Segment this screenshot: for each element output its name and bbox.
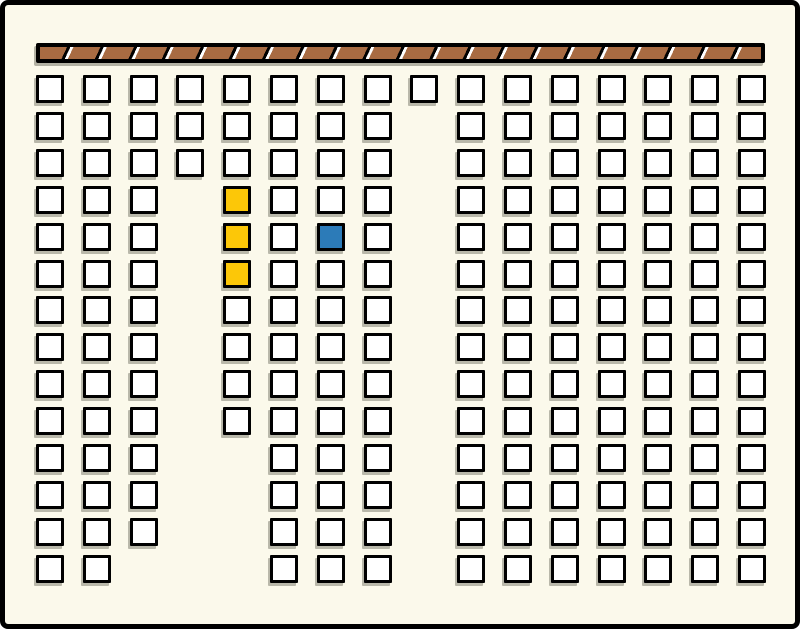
- grid-cell[interactable]: [83, 296, 111, 324]
- grid-cell[interactable]: [551, 370, 579, 398]
- grid-cell[interactable]: [270, 112, 298, 140]
- grid-cell[interactable]: [270, 555, 298, 583]
- grid-cell[interactable]: [223, 296, 251, 324]
- grid-cell[interactable]: [83, 518, 111, 546]
- grid-cell[interactable]: [691, 75, 719, 103]
- grid-cell[interactable]: [364, 186, 392, 214]
- grid-cell[interactable]: [504, 112, 532, 140]
- grid-cell[interactable]: [551, 333, 579, 361]
- grid-cell[interactable]: [598, 296, 626, 324]
- grid-cell[interactable]: [317, 149, 345, 177]
- grid-cell[interactable]: [644, 370, 672, 398]
- grid-cell[interactable]: [598, 260, 626, 288]
- grid-cell[interactable]: [551, 518, 579, 546]
- grid-cell[interactable]: [551, 75, 579, 103]
- grid-cell[interactable]: [36, 223, 64, 251]
- grid-cell[interactable]: [691, 407, 719, 435]
- grid-cell[interactable]: [457, 444, 485, 472]
- grid-cell[interactable]: [551, 223, 579, 251]
- grid-cell[interactable]: [317, 518, 345, 546]
- grid-cell[interactable]: [738, 444, 766, 472]
- grid-cell[interactable]: [457, 260, 485, 288]
- grid-cell[interactable]: [691, 223, 719, 251]
- grid-cell[interactable]: [317, 481, 345, 509]
- grid-cell[interactable]: [223, 333, 251, 361]
- grid-cell[interactable]: [364, 481, 392, 509]
- grid-cell[interactable]: [504, 260, 532, 288]
- grid-cell[interactable]: [270, 296, 298, 324]
- grid-cell[interactable]: [317, 370, 345, 398]
- grid-cell[interactable]: [691, 370, 719, 398]
- grid-cell[interactable]: [176, 75, 204, 103]
- grid-cell[interactable]: [691, 112, 719, 140]
- grid-cell[interactable]: [551, 149, 579, 177]
- grid-cell[interactable]: [457, 333, 485, 361]
- grid-cell[interactable]: [457, 481, 485, 509]
- grid-cell[interactable]: [457, 75, 485, 103]
- grid-cell[interactable]: [738, 407, 766, 435]
- grid-cell[interactable]: [738, 296, 766, 324]
- grid-cell[interactable]: [551, 444, 579, 472]
- grid-cell[interactable]: [270, 186, 298, 214]
- grid-cell[interactable]: [176, 112, 204, 140]
- grid-cell[interactable]: [644, 407, 672, 435]
- grid-cell[interactable]: [504, 223, 532, 251]
- grid-cell-marked[interactable]: [223, 260, 251, 288]
- grid-cell[interactable]: [410, 75, 438, 103]
- grid-cell[interactable]: [176, 149, 204, 177]
- grid-cell[interactable]: [270, 149, 298, 177]
- grid-cell[interactable]: [738, 223, 766, 251]
- grid-cell[interactable]: [83, 112, 111, 140]
- grid-cell[interactable]: [644, 296, 672, 324]
- grid-cell[interactable]: [598, 333, 626, 361]
- grid-cell[interactable]: [83, 260, 111, 288]
- grid-cell[interactable]: [598, 370, 626, 398]
- grid-cell[interactable]: [738, 112, 766, 140]
- grid-cell[interactable]: [270, 481, 298, 509]
- grid-cell[interactable]: [317, 333, 345, 361]
- grid-cell[interactable]: [36, 370, 64, 398]
- grid-cell[interactable]: [36, 75, 64, 103]
- grid-cell[interactable]: [83, 223, 111, 251]
- grid-cell[interactable]: [598, 407, 626, 435]
- grid-cell[interactable]: [644, 75, 672, 103]
- grid-cell[interactable]: [644, 149, 672, 177]
- grid-cell[interactable]: [36, 444, 64, 472]
- grid-cell[interactable]: [130, 444, 158, 472]
- hatched-wall-bar: [36, 43, 765, 63]
- grid-cell[interactable]: [317, 260, 345, 288]
- grid-cell[interactable]: [738, 518, 766, 546]
- grid-cell[interactable]: [130, 370, 158, 398]
- grid-cell[interactable]: [738, 260, 766, 288]
- grid-cell[interactable]: [504, 149, 532, 177]
- grid-cell[interactable]: [504, 333, 532, 361]
- grid-cell[interactable]: [36, 112, 64, 140]
- grid-cell[interactable]: [83, 407, 111, 435]
- grid-cell[interactable]: [691, 296, 719, 324]
- grid-cell[interactable]: [457, 296, 485, 324]
- grid-board: [0, 0, 800, 629]
- grid-cell[interactable]: [644, 444, 672, 472]
- grid-cell[interactable]: [457, 112, 485, 140]
- grid-cell[interactable]: [130, 75, 158, 103]
- grid-cell[interactable]: [83, 149, 111, 177]
- grid-cell[interactable]: [738, 149, 766, 177]
- grid-cell[interactable]: [457, 149, 485, 177]
- grid-cell[interactable]: [598, 444, 626, 472]
- grid-cell[interactable]: [270, 260, 298, 288]
- grid-cell[interactable]: [36, 186, 64, 214]
- grid-cell[interactable]: [83, 370, 111, 398]
- grid-cell[interactable]: [644, 186, 672, 214]
- grid-cell[interactable]: [36, 518, 64, 546]
- grid-cell[interactable]: [457, 223, 485, 251]
- grid-cell[interactable]: [691, 260, 719, 288]
- grid-cell[interactable]: [223, 370, 251, 398]
- grid-cell[interactable]: [551, 407, 579, 435]
- grid-cell[interactable]: [598, 75, 626, 103]
- grid-cell[interactable]: [644, 518, 672, 546]
- grid-cell[interactable]: [691, 444, 719, 472]
- grid-cell[interactable]: [457, 555, 485, 583]
- grid-cell-marked[interactable]: [223, 186, 251, 214]
- grid-cell[interactable]: [364, 518, 392, 546]
- grid-cell[interactable]: [364, 333, 392, 361]
- grid-cell[interactable]: [598, 112, 626, 140]
- grid-cell[interactable]: [36, 407, 64, 435]
- grid-cell[interactable]: [364, 149, 392, 177]
- grid-cell[interactable]: [551, 186, 579, 214]
- grid-cell[interactable]: [504, 186, 532, 214]
- grid-cell[interactable]: [598, 149, 626, 177]
- grid-cell[interactable]: [738, 370, 766, 398]
- grid-cell[interactable]: [691, 481, 719, 509]
- grid-cell[interactable]: [504, 75, 532, 103]
- grid-cell[interactable]: [317, 444, 345, 472]
- grid-cell[interactable]: [364, 260, 392, 288]
- grid-cell[interactable]: [644, 333, 672, 361]
- grid-cell[interactable]: [130, 260, 158, 288]
- grid-cell-marked[interactable]: [223, 223, 251, 251]
- grid-cell[interactable]: [457, 370, 485, 398]
- grid-cell[interactable]: [551, 260, 579, 288]
- grid-cell[interactable]: [270, 370, 298, 398]
- grid-cell[interactable]: [598, 518, 626, 546]
- grid-cell[interactable]: [504, 370, 532, 398]
- grid-cell[interactable]: [364, 370, 392, 398]
- grid-cell[interactable]: [130, 481, 158, 509]
- grid-cell[interactable]: [457, 518, 485, 546]
- grid-cell[interactable]: [644, 260, 672, 288]
- grid-cell[interactable]: [691, 518, 719, 546]
- grid-cell[interactable]: [598, 223, 626, 251]
- grid-cell[interactable]: [83, 75, 111, 103]
- grid-cell[interactable]: [36, 481, 64, 509]
- grid-cell[interactable]: [36, 555, 64, 583]
- grid-cell[interactable]: [691, 555, 719, 583]
- grid-cell[interactable]: [457, 186, 485, 214]
- grid-cell[interactable]: [504, 518, 532, 546]
- grid-cell-marked[interactable]: [317, 223, 345, 251]
- grid-cell[interactable]: [130, 407, 158, 435]
- grid-cell[interactable]: [130, 296, 158, 324]
- grid-cell[interactable]: [504, 555, 532, 583]
- grid-cell[interactable]: [317, 186, 345, 214]
- grid-cell[interactable]: [223, 149, 251, 177]
- grid-cell[interactable]: [551, 555, 579, 583]
- grid-cell[interactable]: [364, 112, 392, 140]
- grid-cell[interactable]: [504, 407, 532, 435]
- grid-cell[interactable]: [551, 481, 579, 509]
- grid-cell[interactable]: [270, 518, 298, 546]
- grid-cell[interactable]: [738, 481, 766, 509]
- grid-cell[interactable]: [738, 186, 766, 214]
- grid-cell[interactable]: [504, 296, 532, 324]
- grid-cell[interactable]: [504, 481, 532, 509]
- grid-cell[interactable]: [364, 444, 392, 472]
- grid-cell[interactable]: [36, 296, 64, 324]
- grid-cell[interactable]: [738, 555, 766, 583]
- grid-cell[interactable]: [317, 112, 345, 140]
- grid-cell[interactable]: [691, 333, 719, 361]
- grid-cell[interactable]: [317, 555, 345, 583]
- grid-cell[interactable]: [738, 75, 766, 103]
- grid-cell[interactable]: [83, 186, 111, 214]
- grid-cell[interactable]: [317, 75, 345, 103]
- grid-cell[interactable]: [223, 112, 251, 140]
- grid-cell[interactable]: [644, 112, 672, 140]
- grid-cell[interactable]: [551, 296, 579, 324]
- grid-cell[interactable]: [130, 518, 158, 546]
- grid-cell[interactable]: [317, 407, 345, 435]
- grid-cell[interactable]: [504, 444, 532, 472]
- grid-cell[interactable]: [644, 481, 672, 509]
- grid-cell[interactable]: [551, 112, 579, 140]
- grid-cell[interactable]: [130, 333, 158, 361]
- grid-cell[interactable]: [457, 407, 485, 435]
- grid-cell[interactable]: [130, 186, 158, 214]
- grid-cell[interactable]: [644, 555, 672, 583]
- grid-cell[interactable]: [270, 75, 298, 103]
- grid-cell[interactable]: [598, 481, 626, 509]
- grid-cell[interactable]: [598, 555, 626, 583]
- grid-cell[interactable]: [83, 444, 111, 472]
- grid-cell[interactable]: [83, 333, 111, 361]
- grid-cell[interactable]: [691, 149, 719, 177]
- grid-cell[interactable]: [364, 75, 392, 103]
- grid-cell[interactable]: [223, 407, 251, 435]
- grid-cell[interactable]: [270, 407, 298, 435]
- grid-cell[interactable]: [270, 444, 298, 472]
- grid-cell[interactable]: [364, 407, 392, 435]
- grid-cell[interactable]: [364, 296, 392, 324]
- grid-cell[interactable]: [317, 296, 345, 324]
- grid-cell[interactable]: [83, 555, 111, 583]
- grid-cell[interactable]: [36, 260, 64, 288]
- grid-cell[interactable]: [130, 112, 158, 140]
- grid-cell[interactable]: [130, 223, 158, 251]
- grid-cell[interactable]: [644, 223, 672, 251]
- grid-cell[interactable]: [691, 186, 719, 214]
- grid-cell[interactable]: [270, 223, 298, 251]
- grid-cell[interactable]: [598, 186, 626, 214]
- grid-cell[interactable]: [270, 333, 298, 361]
- grid-cell[interactable]: [36, 333, 64, 361]
- grid-cell[interactable]: [130, 149, 158, 177]
- grid-cell[interactable]: [364, 223, 392, 251]
- grid-cell[interactable]: [223, 75, 251, 103]
- grid-cell[interactable]: [738, 333, 766, 361]
- grid-cell[interactable]: [36, 149, 64, 177]
- grid-cell[interactable]: [83, 481, 111, 509]
- grid-cell[interactable]: [364, 555, 392, 583]
